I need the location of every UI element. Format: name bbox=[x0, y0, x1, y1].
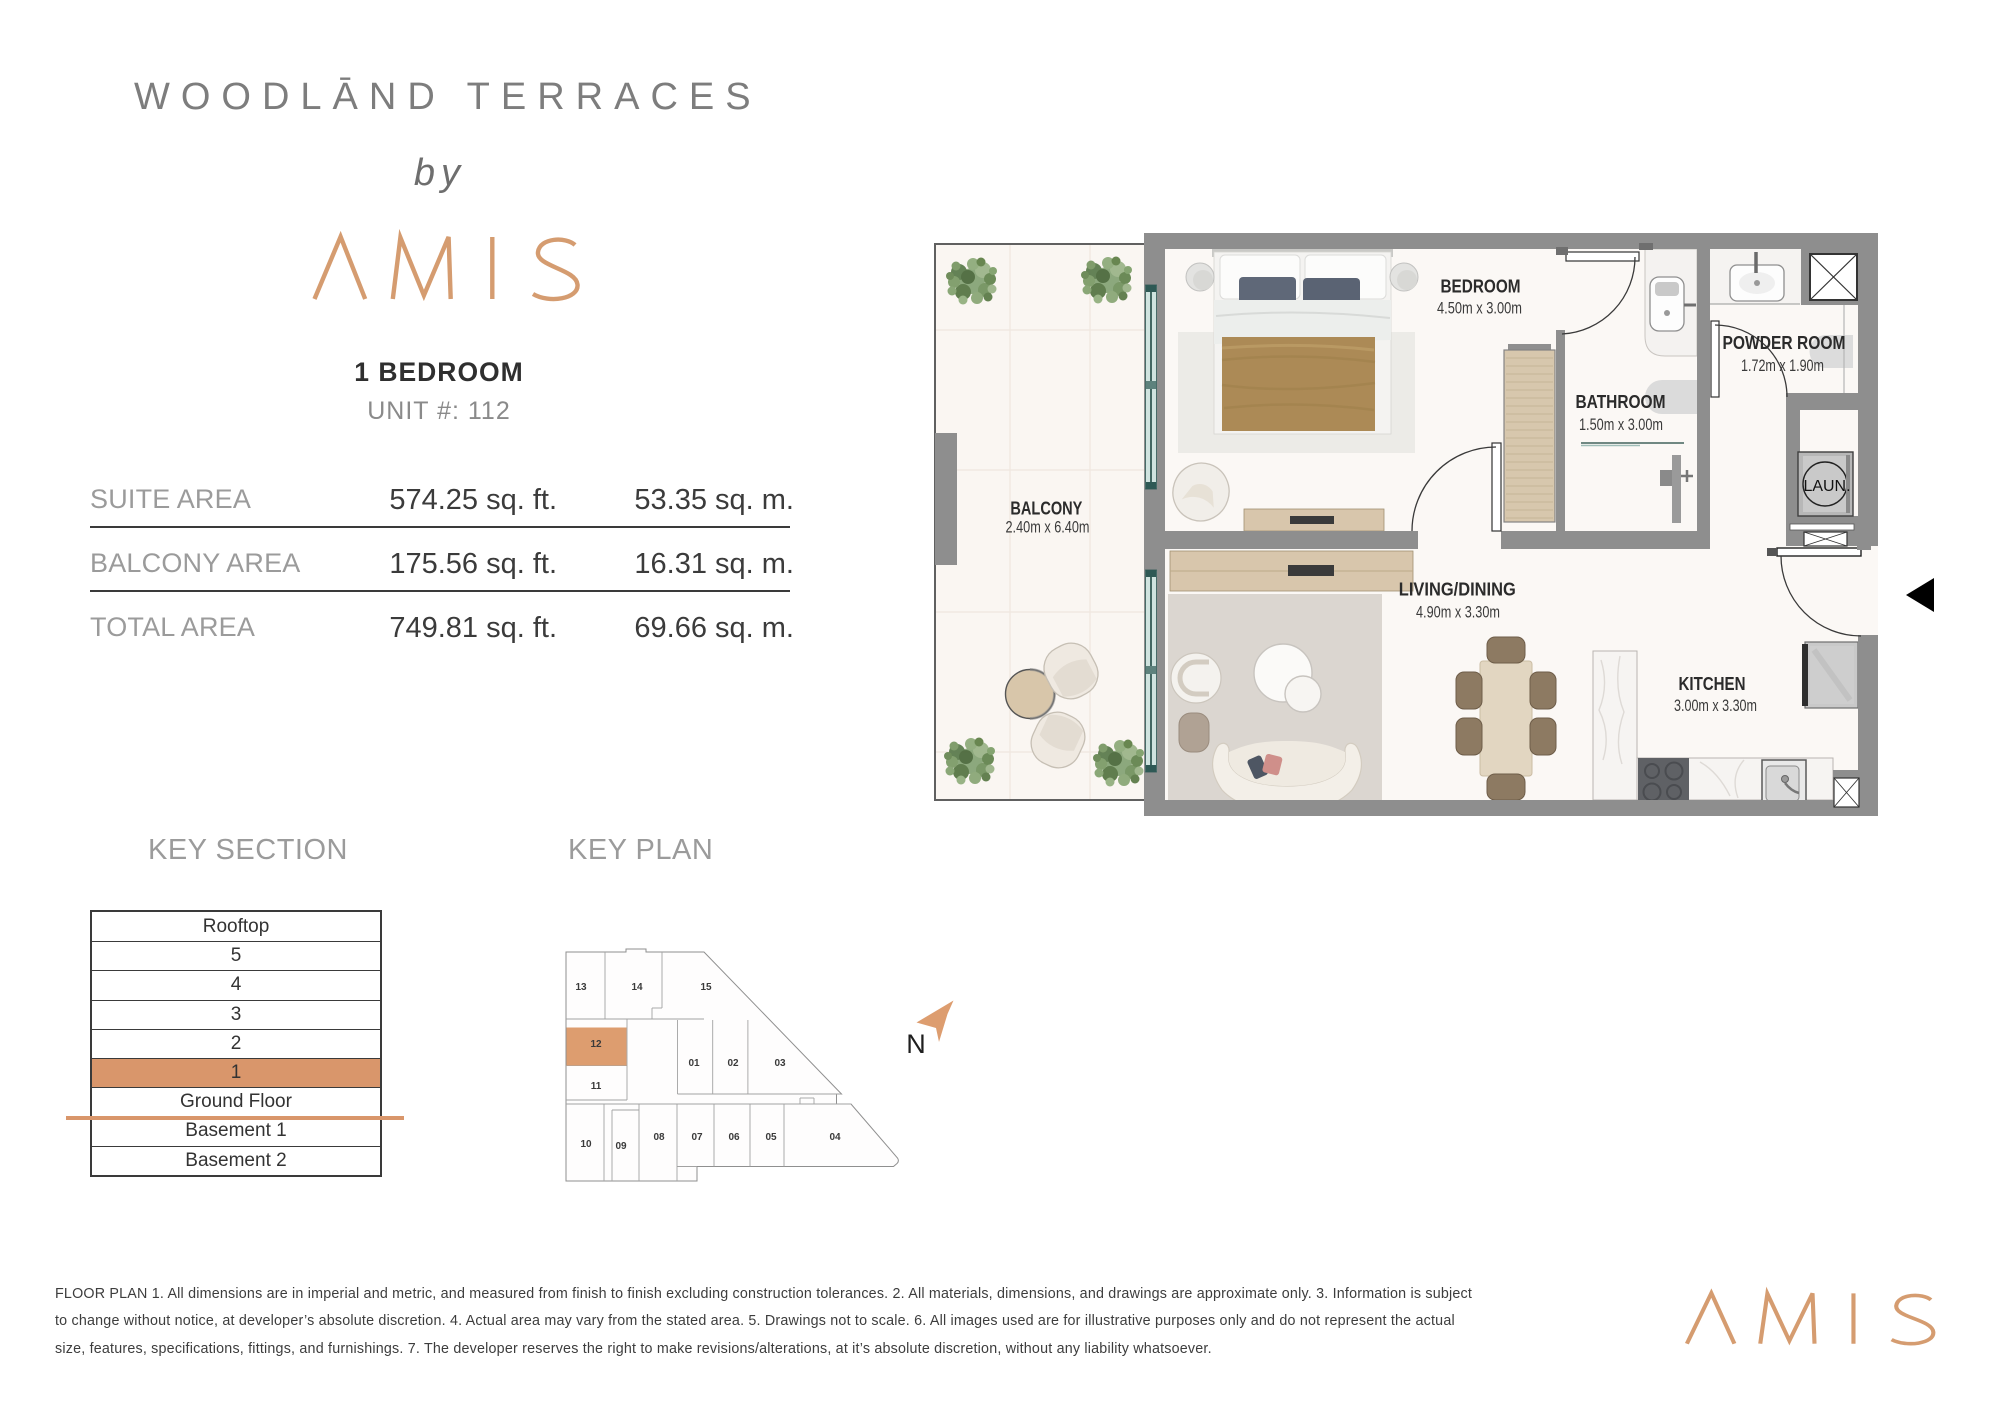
svg-text:02: 02 bbox=[727, 1058, 739, 1069]
svg-text:BEDROOM: BEDROOM bbox=[1441, 276, 1521, 297]
svg-text:N: N bbox=[906, 1029, 926, 1059]
svg-text:LAUN.: LAUN. bbox=[1804, 478, 1851, 495]
svg-text:12: 12 bbox=[590, 1039, 602, 1050]
svg-text:LIVING/DINING: LIVING/DINING bbox=[1399, 579, 1516, 600]
svg-text:04: 04 bbox=[829, 1132, 841, 1143]
svg-text:05: 05 bbox=[765, 1132, 777, 1143]
svg-text:11: 11 bbox=[591, 1081, 602, 1092]
svg-text:BALCONY: BALCONY bbox=[1010, 498, 1083, 519]
svg-text:4.50m x 3.00m: 4.50m x 3.00m bbox=[1437, 299, 1522, 318]
svg-text:2.40m x 6.40m: 2.40m x 6.40m bbox=[1006, 518, 1090, 537]
svg-text:06: 06 bbox=[728, 1132, 740, 1143]
svg-text:01: 01 bbox=[688, 1058, 700, 1069]
svg-text:03: 03 bbox=[774, 1058, 786, 1069]
svg-text:1.72m x 1.90m: 1.72m x 1.90m bbox=[1741, 356, 1824, 375]
svg-text:4.90m x 3.30m: 4.90m x 3.30m bbox=[1416, 603, 1500, 622]
svg-text:10: 10 bbox=[580, 1139, 592, 1150]
svg-text:14: 14 bbox=[631, 982, 643, 993]
svg-text:BATHROOM: BATHROOM bbox=[1576, 391, 1666, 412]
svg-text:13: 13 bbox=[575, 982, 587, 993]
svg-text:1.50m x 3.00m: 1.50m x 3.00m bbox=[1579, 415, 1663, 434]
svg-text:POWDER ROOM: POWDER ROOM bbox=[1723, 332, 1846, 353]
svg-text:07: 07 bbox=[691, 1132, 703, 1143]
svg-text:KITCHEN: KITCHEN bbox=[1679, 673, 1746, 694]
svg-text:15: 15 bbox=[700, 982, 712, 993]
svg-text:09: 09 bbox=[615, 1141, 627, 1152]
svg-text:3.00m x 3.30m: 3.00m x 3.30m bbox=[1674, 696, 1757, 715]
svg-text:08: 08 bbox=[653, 1132, 665, 1143]
